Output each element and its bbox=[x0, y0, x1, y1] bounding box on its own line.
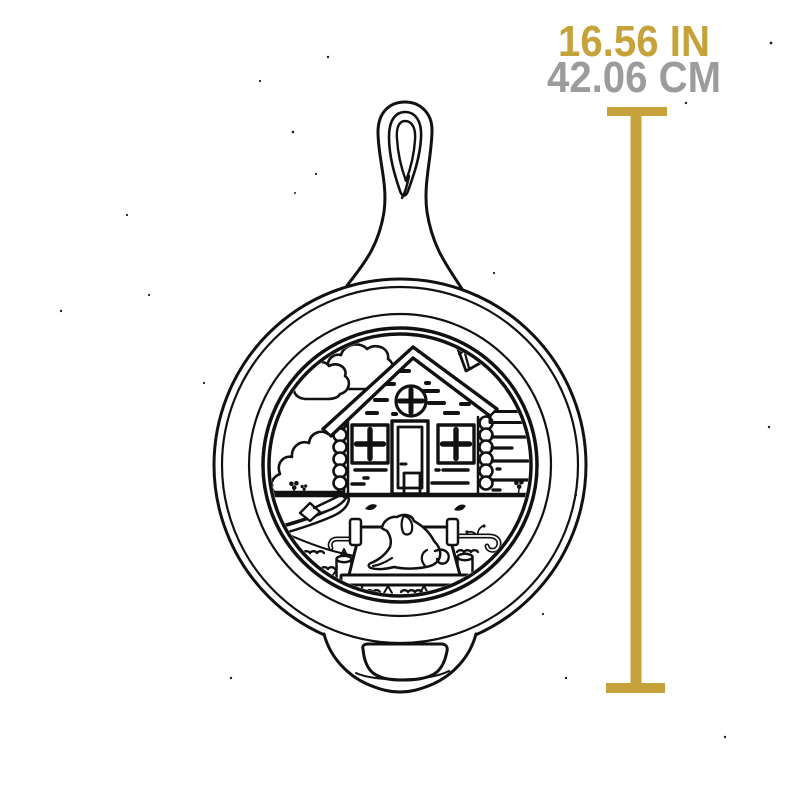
dimension-line-bar bbox=[631, 116, 642, 683]
dock-post-right bbox=[447, 519, 458, 545]
dimension-line-bottom-cap bbox=[606, 683, 665, 693]
dimension-line-top-cap bbox=[607, 107, 667, 116]
skillet-handle bbox=[346, 102, 462, 289]
right-window bbox=[438, 425, 474, 463]
hang-hole-outer bbox=[389, 112, 421, 196]
dock-front-board bbox=[341, 575, 468, 585]
dog-nose bbox=[380, 525, 383, 528]
dimension-label-centimeters: 42.06 CM bbox=[547, 53, 721, 102]
round-gable-window bbox=[396, 386, 426, 416]
door bbox=[392, 421, 428, 494]
product-dimension-diagram: { "dimension_annotation": { "inches": "1… bbox=[0, 0, 801, 801]
hang-hole-inner bbox=[397, 121, 415, 181]
dog-ear bbox=[402, 516, 413, 534]
cast-iron-skillet-illustration: 16.56 IN 42.06 CM bbox=[0, 0, 801, 801]
dimension-line bbox=[606, 107, 667, 693]
dock-post-left bbox=[350, 519, 361, 545]
fence-logs bbox=[490, 412, 535, 491]
left-window bbox=[352, 425, 388, 463]
helper-grip-hole bbox=[363, 644, 448, 680]
